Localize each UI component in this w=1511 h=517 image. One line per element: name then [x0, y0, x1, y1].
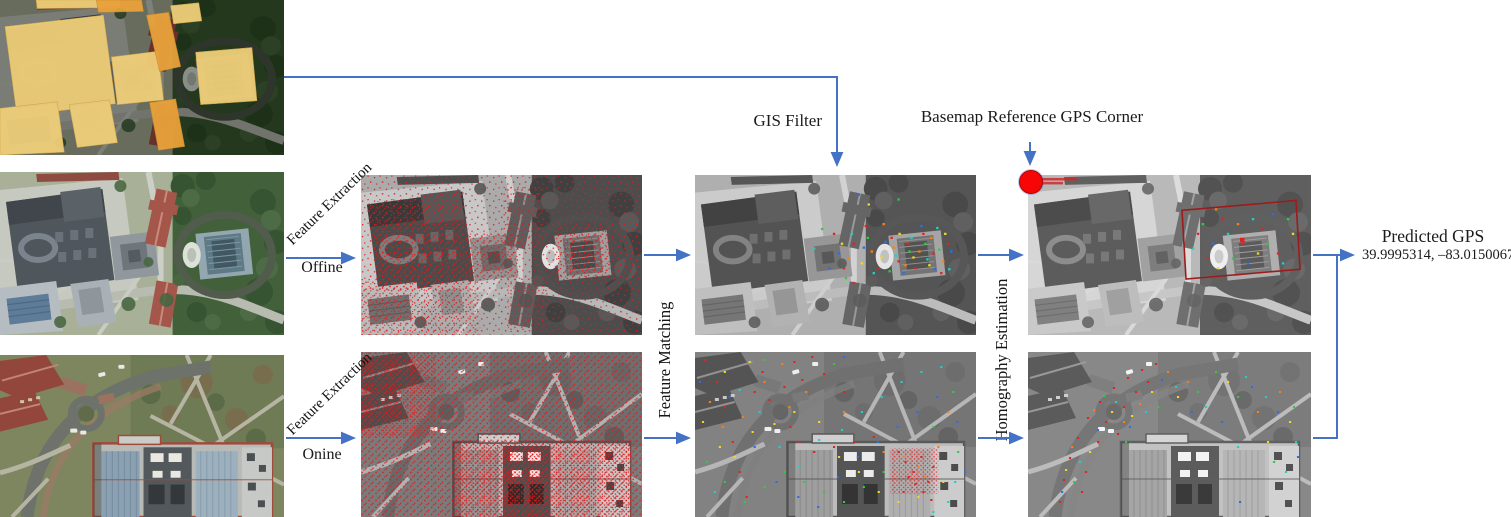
panel-basemap-features — [361, 175, 642, 335]
panel-gis-footprint-basemap — [0, 0, 284, 155]
panel-drone-photo-color — [0, 355, 284, 517]
reference-gps-corner-dot — [1019, 170, 1043, 194]
online-mode-label: Onine — [272, 446, 372, 464]
predicted-gps-title: Predicted GPS — [1333, 226, 1511, 247]
panel-drone-homography — [1028, 352, 1311, 517]
panel-drone-features — [361, 352, 642, 517]
feature-matching-label: Feature Matching — [655, 260, 675, 460]
panel-drone-matches — [695, 352, 976, 517]
panel-basemap-matches — [695, 175, 976, 335]
predicted-gps-value: 39.9995314, –83.0150067 — [1362, 247, 1511, 264]
gis-filter-label: GIS Filter — [700, 111, 822, 131]
panel-query-basemap-color — [0, 172, 284, 335]
panel-basemap-homography — [1028, 175, 1311, 335]
geolocalization-pipeline-figure: GIS Filter Basemap Reference GPS Corner … — [0, 0, 1511, 517]
offline-mode-label: Offine — [272, 259, 372, 277]
basemap-reference-gps-corner-label: Basemap Reference GPS Corner — [912, 107, 1152, 127]
homography-estimation-label: Homography Estimation — [992, 250, 1012, 470]
